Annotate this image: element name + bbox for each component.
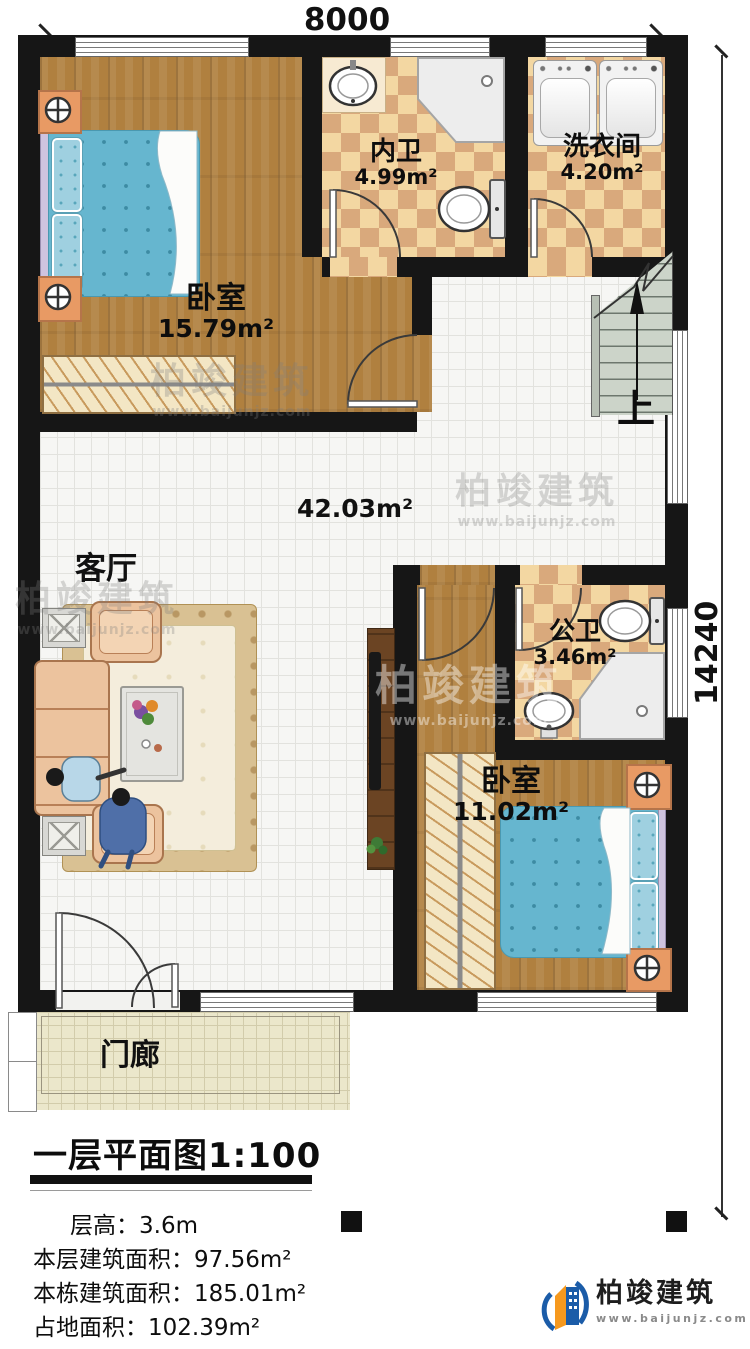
stat-label: 本层建筑面积： [33, 1247, 194, 1273]
logo-building-icon [540, 1278, 590, 1334]
plan-title: 一层平面图1:100 [33, 1128, 321, 1177]
person-sitting [100, 788, 146, 867]
stat-value: 97.56m² [194, 1247, 291, 1273]
room-label-bedroom2: 卧室 11.02m² [441, 766, 581, 825]
plan-title-text: 一层平面图 [33, 1136, 208, 1176]
flowers-icon [132, 700, 162, 752]
sink-icon [330, 60, 376, 105]
floor-plan-page: 8000 14240 [0, 0, 750, 1349]
room-area: 3.46m² [505, 646, 645, 669]
plan-title-scale: 1:100 [208, 1136, 321, 1176]
stat-value: 185.01m² [194, 1281, 306, 1307]
stat-value: 3.6m [139, 1213, 198, 1239]
room-name: 卧室 [146, 283, 286, 315]
room-name: 洗衣间 [527, 133, 677, 161]
room-area: 11.02m² [441, 798, 581, 825]
room-label-ensuite: 内卫 4.99m² [326, 138, 466, 189]
logo-name: 柏竣建筑 [596, 1278, 748, 1310]
room-label-living: 客厅 [75, 543, 137, 588]
room-label-laundry: 洗衣间 4.20m² [527, 133, 677, 184]
title-underline [30, 1175, 312, 1184]
person-lying [46, 757, 124, 801]
room-name: 内卫 [326, 138, 466, 166]
shower-icon [418, 58, 504, 142]
room-area: 4.99m² [326, 166, 466, 189]
stat-value: 102.39m² [148, 1315, 260, 1341]
marker-square [341, 1211, 362, 1232]
room-area-living: 42.03m² [285, 494, 425, 523]
logo-url: www.baijunjz.com [596, 1312, 748, 1325]
sink-icon [525, 693, 573, 738]
stat-row: 占地面积：102.39m² [33, 1308, 260, 1342]
stat-row: 本栋建筑面积：185.01m² [33, 1274, 306, 1308]
stat-label: 层高： [70, 1213, 139, 1239]
stat-label: 占地面积： [33, 1315, 148, 1341]
stairs-up-label: 上 [617, 378, 655, 433]
title-underline-thin [30, 1190, 312, 1191]
room-area: 4.20m² [527, 161, 677, 184]
room-name: 卧室 [441, 766, 581, 798]
room-area: 15.79m² [146, 315, 286, 342]
stat-label: 本栋建筑面积： [33, 1281, 194, 1307]
room-name: 公卫 [505, 618, 645, 646]
door-leaf [56, 190, 537, 1008]
stat-row: 本层建筑面积：97.56m² [33, 1240, 291, 1274]
company-logo: 柏竣建筑 www.baijunjz.com [540, 1278, 748, 1334]
room-label-porch: 门廊 [100, 1030, 160, 1074]
blanket-fold [600, 808, 630, 954]
marker-square [666, 1211, 687, 1232]
stair-arrow-head [630, 280, 644, 314]
plant-icon [367, 837, 388, 855]
stat-row: 层高：3.6m [70, 1206, 198, 1240]
room-label-bedroom1: 卧室 15.79m² [146, 283, 286, 342]
blanket-fold [157, 131, 197, 294]
door-swing [59, 190, 592, 1008]
room-label-bath: 公卫 3.46m² [505, 618, 645, 669]
